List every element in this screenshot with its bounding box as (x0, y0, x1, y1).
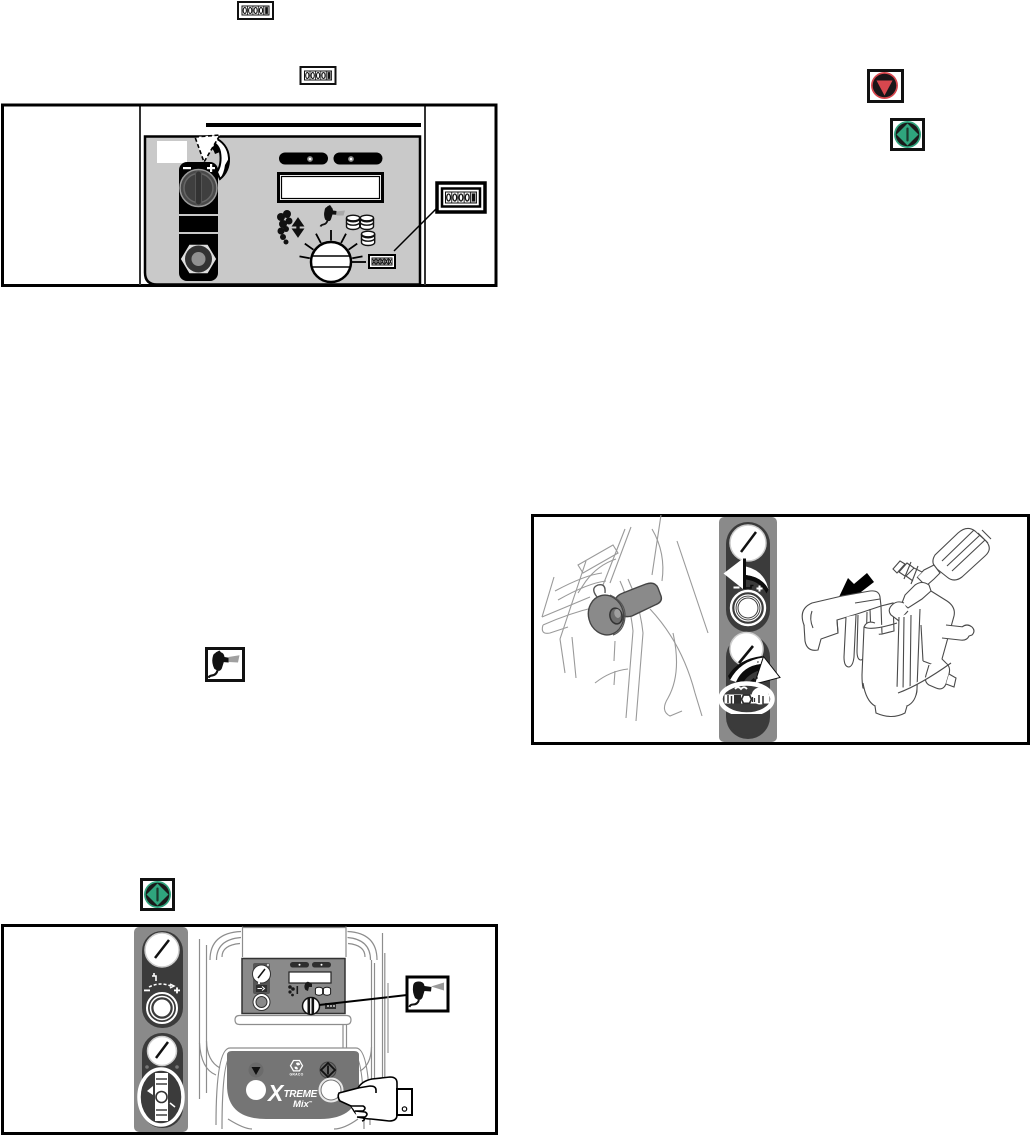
svg-text:GRACO: GRACO (289, 1073, 303, 1077)
svg-text:™: ™ (308, 1100, 313, 1105)
svg-text:X: X (266, 1080, 285, 1106)
